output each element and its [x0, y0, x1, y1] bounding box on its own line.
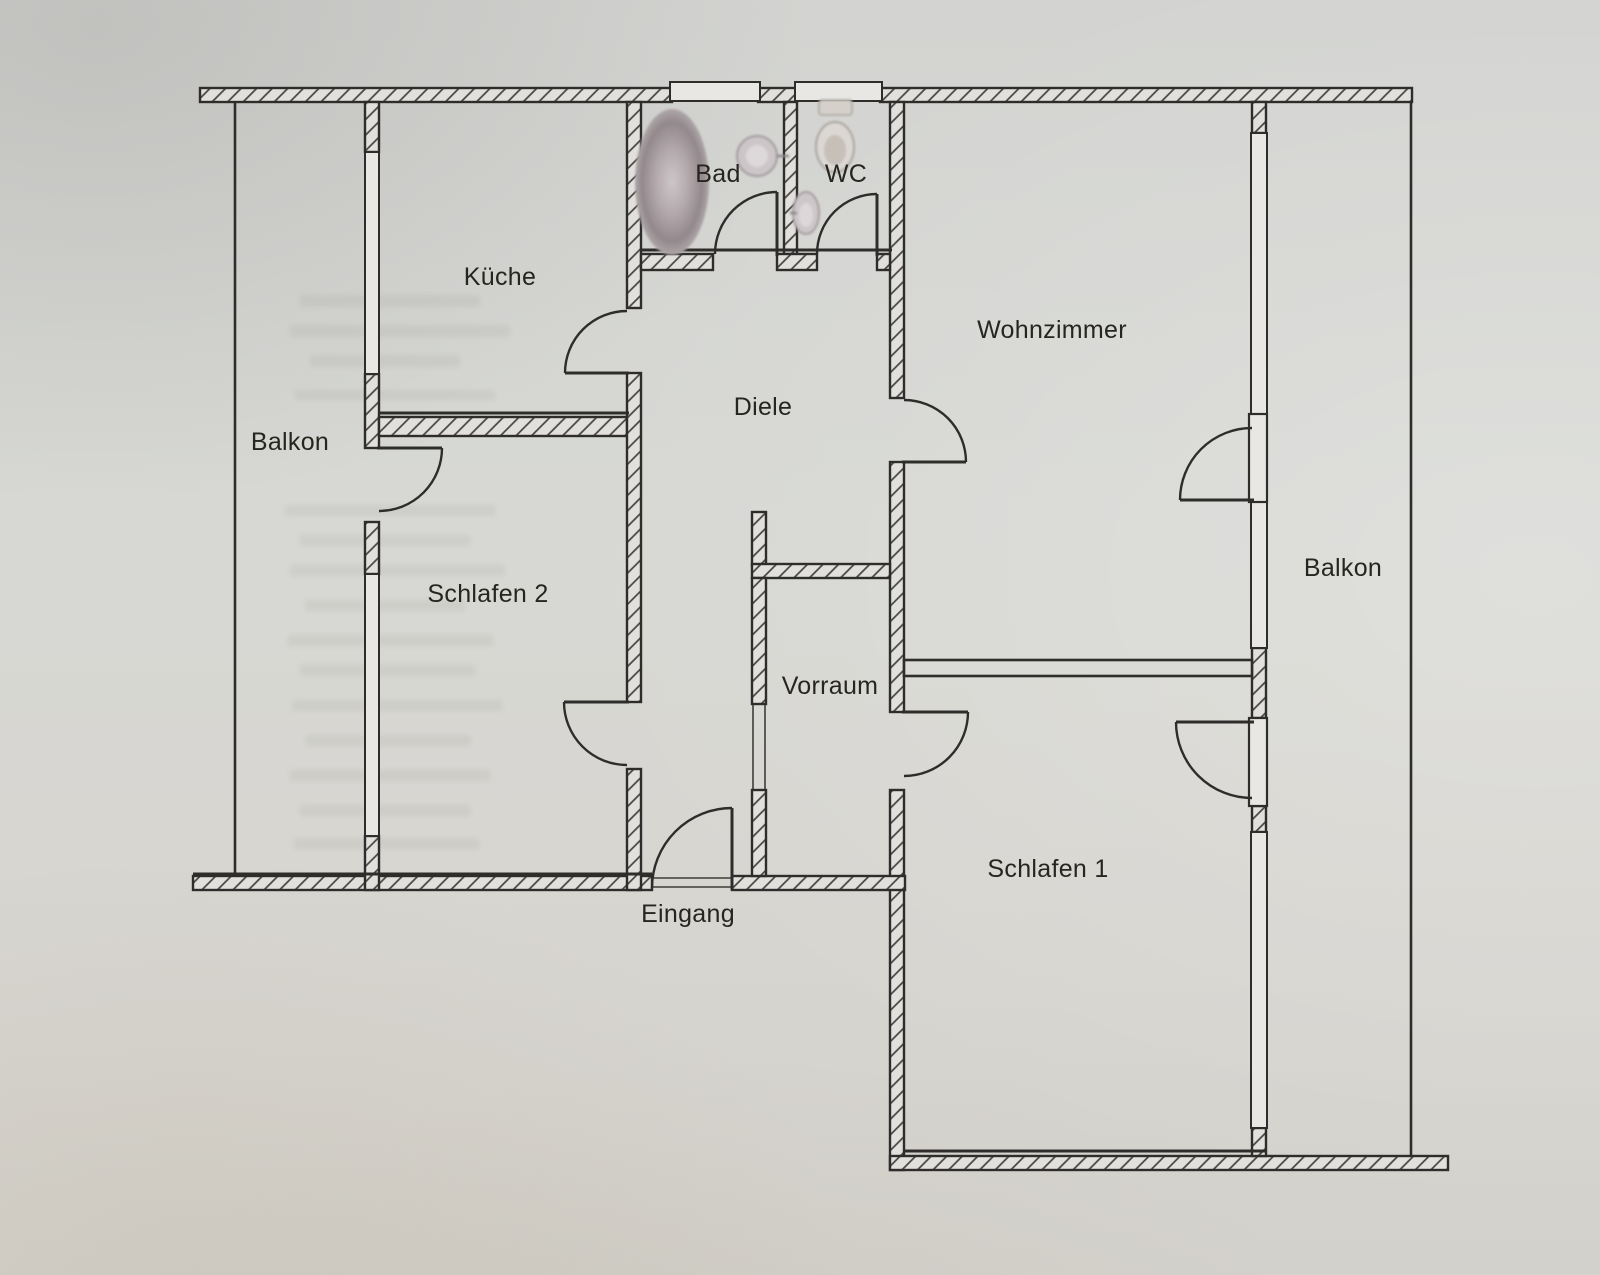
floor-plan-canvas: Balkon Küche Bad WC Wohnzimmer Diele Sch… — [0, 0, 1600, 1275]
wall-segment — [752, 790, 766, 876]
door-schlafen1 — [902, 712, 968, 776]
door-schlafen2-balkon — [377, 448, 442, 511]
room-label-balkon-left: Balkon — [251, 428, 329, 456]
room-label-schlafen2: Schlafen 2 — [427, 580, 548, 608]
washbasin-icon — [737, 136, 789, 176]
wall-segment — [641, 254, 713, 270]
window-wc-top — [795, 82, 882, 101]
door-schlafen2 — [564, 702, 629, 765]
wall-segment — [890, 790, 904, 1170]
window-wohnzimmer-top — [1251, 133, 1267, 414]
wall-segment — [1252, 806, 1266, 832]
wall-openings — [652, 704, 765, 887]
wall-segment — [365, 522, 379, 574]
wall-segment — [890, 1156, 1448, 1170]
door-bad — [715, 192, 777, 256]
door-schlafen1-balkon — [1176, 722, 1254, 798]
balcony-edges — [235, 102, 1411, 1157]
room-label-wc: WC — [825, 160, 867, 188]
door-kueche — [565, 311, 629, 373]
window-schlafen2 — [365, 574, 379, 836]
window-wohnzimmer-low — [1251, 502, 1267, 648]
wall-segment — [752, 564, 890, 578]
wall-segment — [365, 102, 379, 152]
wall-segment — [880, 88, 1412, 102]
door-wohnzimmer — [902, 400, 966, 462]
wall-segment — [732, 876, 905, 890]
wall-segment — [758, 88, 797, 102]
wall-segment — [365, 836, 379, 890]
wall-segment — [627, 373, 641, 702]
wall-segment — [193, 876, 652, 890]
window-kueche — [365, 152, 379, 374]
room-label-diele: Diele — [734, 393, 792, 421]
doors — [377, 192, 1267, 890]
wall-segment — [200, 88, 672, 102]
wall-segment — [784, 102, 797, 254]
room-label-vorraum: Vorraum — [782, 672, 879, 700]
wall-segment — [365, 374, 379, 448]
room-label-wohnzimmer: Wohnzimmer — [977, 316, 1127, 344]
wall-segment — [752, 578, 766, 704]
wall-segment — [1252, 102, 1266, 133]
window-bad-top — [670, 82, 760, 101]
wall-segment — [877, 254, 890, 270]
room-label-kueche: Küche — [464, 263, 536, 291]
wall-segment — [752, 512, 766, 566]
wall-segment — [890, 462, 904, 712]
wall-segment — [627, 769, 641, 890]
door-blade-schlafen1-balkon — [1249, 718, 1267, 806]
wall-segment — [777, 254, 817, 270]
room-label-eingang: Eingang — [641, 900, 735, 928]
room-label-bad: Bad — [695, 160, 740, 188]
room-label-schlafen1: Schlafen 1 — [987, 855, 1108, 883]
door-wc — [817, 194, 877, 256]
window-schlafen1 — [1251, 832, 1267, 1128]
wall-segment — [890, 102, 904, 398]
door-wohnzimmer-balkon — [1180, 428, 1254, 500]
room-label-balkon-right: Balkon — [1304, 554, 1382, 582]
wall-segment — [379, 417, 627, 436]
wall-divider-wohnzimmer-schlafen1 — [904, 660, 1252, 676]
paper-bleed-through — [285, 295, 510, 849]
wall-segment — [1252, 648, 1266, 718]
